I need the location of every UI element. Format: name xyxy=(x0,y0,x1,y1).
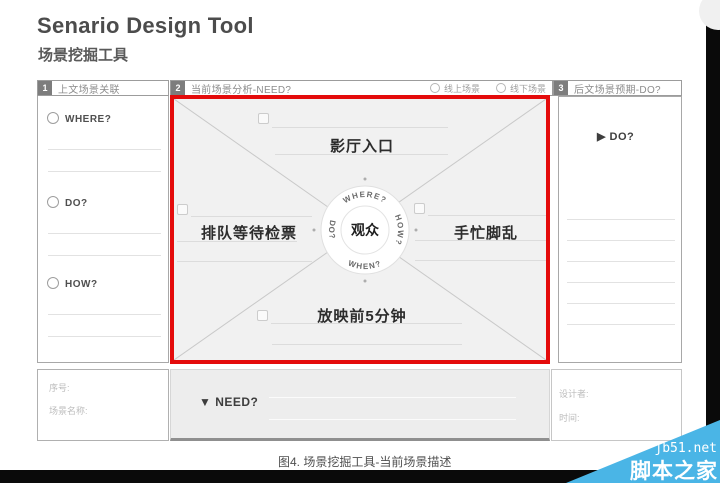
compass-dot xyxy=(313,229,316,232)
where-label: WHERE? xyxy=(65,114,111,125)
write-line xyxy=(271,323,462,324)
write-line xyxy=(191,216,312,217)
scene-name-label: 场景名称: xyxy=(49,404,88,417)
write-line xyxy=(177,241,297,242)
section1-number-badge: 1 xyxy=(38,81,52,95)
footer-id-cell: 序号: 场景名称: xyxy=(37,369,169,441)
section3-title: 后文场景预期-DO? xyxy=(574,81,661,96)
offline-scene-label: 线下场景 xyxy=(510,82,546,95)
do-radio[interactable] xyxy=(47,196,59,208)
section2-title: 当前场景分析-NEED? xyxy=(191,81,291,96)
corner-notch xyxy=(699,0,720,30)
compass-dot xyxy=(364,280,367,283)
write-line xyxy=(48,336,161,337)
footer-meta-cell: 设计者: 时间: xyxy=(551,369,682,441)
designer-label: 设计者: xyxy=(559,387,589,400)
write-line xyxy=(272,127,448,128)
write-line xyxy=(275,154,448,155)
write-line xyxy=(48,233,161,234)
serial-label: 序号: xyxy=(49,381,70,394)
section2-header: 2 当前场景分析-NEED? 线上场景 线下场景 xyxy=(170,80,553,96)
write-line xyxy=(567,261,675,262)
write-line xyxy=(177,261,312,262)
write-line xyxy=(269,419,516,420)
write-line xyxy=(48,149,161,150)
write-line xyxy=(567,219,675,220)
bottom-quadrant-checkbox[interactable] xyxy=(257,310,268,321)
section3-header: 3 后文场景预期-DO? xyxy=(553,80,682,96)
scenario-design-tool-figure: Senario Design Tool 场景挖掘工具 1 上文场景关联 2 当前… xyxy=(0,0,720,483)
watermark-site: jb51.net xyxy=(654,441,717,456)
how-label: HOW? xyxy=(65,279,98,290)
write-line xyxy=(567,282,675,283)
section2-number-badge: 2 xyxy=(171,81,185,95)
write-line xyxy=(415,260,546,261)
compass-dot xyxy=(415,229,418,232)
do-label: DO? xyxy=(65,198,88,209)
top-quadrant-checkbox[interactable] xyxy=(258,113,269,124)
write-line xyxy=(415,240,546,241)
current-scene-panel-highlight: 影厅入口 排队等待检票 手忙脚乱 放映前5分钟 xyxy=(170,95,550,364)
compass-dot xyxy=(364,178,367,181)
section1-header: 1 上文场景关联 xyxy=(37,80,169,96)
audience-hub: WHERE? HOW? WHEN? DO? 观众 xyxy=(303,168,427,292)
figure-caption: 图4. 场景挖掘工具-当前场景描述 xyxy=(278,453,451,470)
page-subtitle: 场景挖掘工具 xyxy=(38,44,128,65)
need-label: ▼ NEED? xyxy=(199,395,258,409)
hub-label: 观众 xyxy=(351,222,379,238)
svg-text:DO?: DO? xyxy=(327,219,337,240)
next-do-label: ▶ DO? xyxy=(597,130,634,143)
write-line xyxy=(48,255,161,256)
section3-number-badge: 3 xyxy=(554,81,568,95)
write-line xyxy=(48,314,161,315)
where-radio[interactable] xyxy=(47,112,59,124)
write-line xyxy=(272,344,462,345)
write-line xyxy=(567,240,675,241)
previous-scene-panel: WHERE? DO? HOW? xyxy=(37,96,169,363)
how-radio[interactable] xyxy=(47,277,59,289)
compass-left-label: DO? xyxy=(327,219,337,240)
write-line xyxy=(269,397,516,398)
page-title: Senario Design Tool xyxy=(37,13,254,39)
footer-need-cell: ▼ NEED? xyxy=(170,369,550,441)
online-scene-radio[interactable] xyxy=(430,83,440,93)
left-quadrant-checkbox[interactable] xyxy=(177,204,188,215)
offline-scene-radio[interactable] xyxy=(496,83,506,93)
right-crop-bar xyxy=(706,0,720,483)
watermark-name: 脚本之家 xyxy=(630,455,718,483)
top-quadrant-text: 影厅入口 xyxy=(282,135,442,156)
online-scene-label: 线上场景 xyxy=(444,82,480,95)
left-quadrant-text: 排队等待检票 xyxy=(199,222,299,243)
write-line xyxy=(48,171,161,172)
next-scene-panel: ▶ DO? xyxy=(558,96,682,363)
write-line xyxy=(567,303,675,304)
time-label: 时间: xyxy=(559,411,580,424)
write-line xyxy=(567,324,675,325)
write-line xyxy=(428,215,546,216)
section1-title: 上文场景关联 xyxy=(58,81,120,96)
